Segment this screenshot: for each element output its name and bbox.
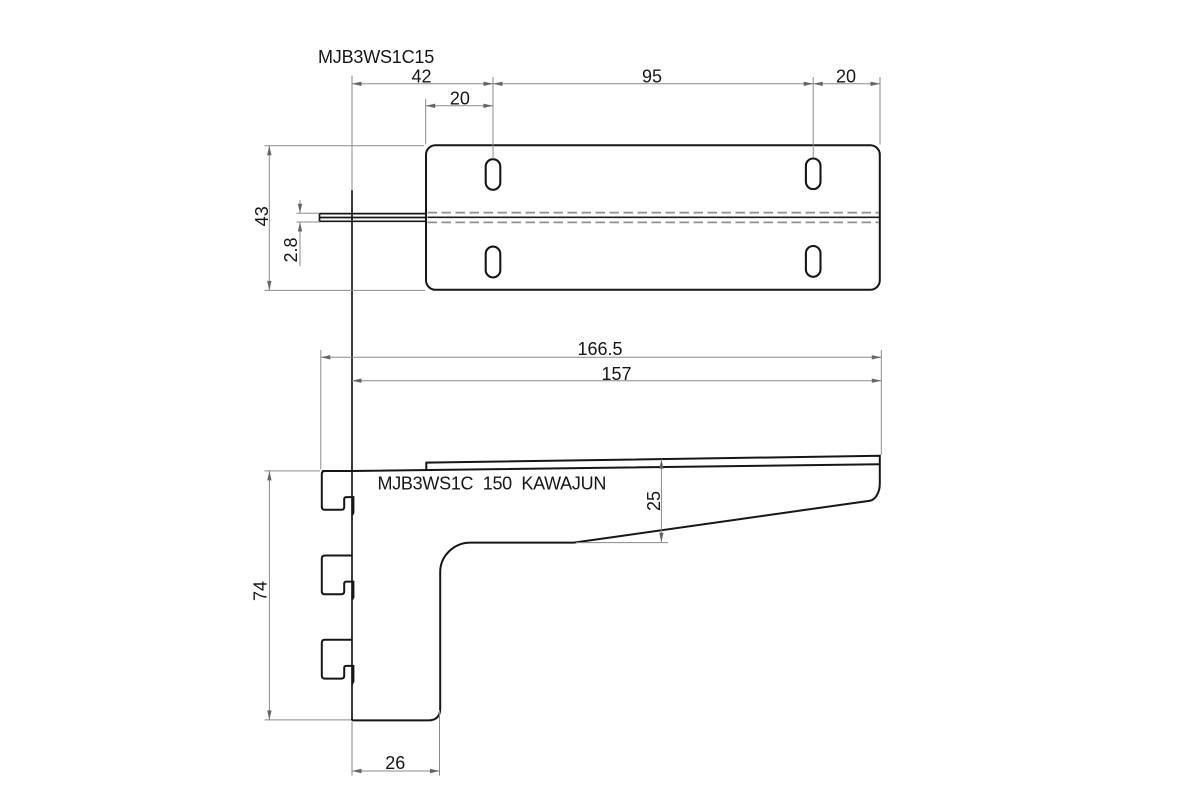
svg-text:26: 26 bbox=[385, 753, 405, 773]
svg-text:166.5: 166.5 bbox=[577, 339, 622, 359]
svg-text:20: 20 bbox=[450, 88, 470, 108]
svg-text:42: 42 bbox=[411, 67, 431, 87]
svg-text:2.8: 2.8 bbox=[281, 237, 301, 262]
svg-text:43: 43 bbox=[252, 206, 272, 226]
svg-text:74: 74 bbox=[251, 581, 271, 601]
svg-text:MJB3WS1C15: MJB3WS1C15 bbox=[318, 47, 434, 67]
svg-text:157: 157 bbox=[601, 364, 631, 384]
svg-text:95: 95 bbox=[642, 67, 662, 87]
svg-text:25: 25 bbox=[644, 491, 664, 511]
svg-text:MJB3WS1C 150 KAWAJUN: MJB3WS1C 150 KAWAJUN bbox=[378, 474, 607, 494]
svg-text:20: 20 bbox=[836, 67, 856, 87]
